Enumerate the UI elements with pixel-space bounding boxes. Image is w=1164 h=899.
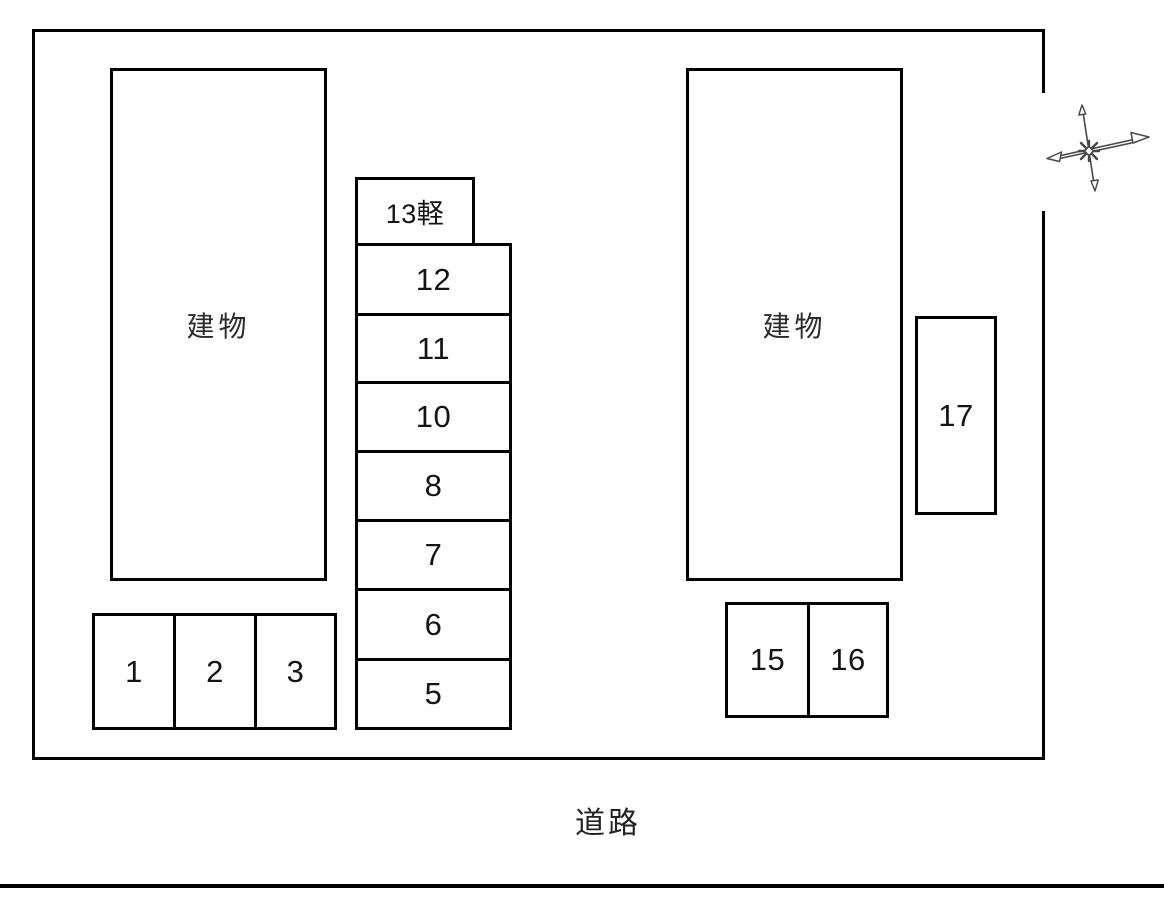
parking-space-10: 10 — [355, 381, 512, 453]
parking-space-17-label: 17 — [938, 398, 973, 434]
parking-space-10-label: 10 — [416, 399, 451, 435]
building-right-label: 建物 — [762, 305, 826, 345]
parking-space-12: 12 — [355, 243, 512, 316]
parking-space-7: 7 — [355, 519, 512, 591]
site-boundary-right-upper — [1042, 29, 1045, 93]
parking-space-8: 8 — [355, 450, 512, 522]
parking-space-17: 17 — [915, 316, 997, 515]
parking-space-15-label: 15 — [750, 642, 785, 678]
parking-space-2-label: 2 — [206, 654, 224, 690]
road-label: 道路 — [575, 798, 641, 842]
parking-space-2: 2 — [173, 613, 257, 730]
compass-rose-icon — [1040, 100, 1156, 196]
building-right: 建物 — [686, 68, 903, 581]
parking-space-13kei-label: 13軽 — [386, 192, 445, 231]
parking-space-13kei: 13軽 — [355, 177, 475, 246]
parking-space-1-label: 1 — [125, 654, 143, 690]
site-boundary-top — [32, 29, 1045, 32]
parking-space-3-label: 3 — [287, 654, 305, 690]
parking-space-16-label: 16 — [830, 642, 865, 678]
building-left-label: 建物 — [186, 305, 250, 345]
parking-layout-diagram: 建物 建物 13軽 12 11 10 8 7 6 5 1 2 3 15 16 — [0, 0, 1164, 899]
road-edge-line — [0, 884, 1164, 888]
parking-space-3: 3 — [254, 613, 337, 730]
parking-space-12-label: 12 — [416, 262, 451, 298]
parking-space-11-label: 11 — [417, 331, 450, 367]
parking-space-11: 11 — [355, 313, 512, 384]
site-boundary-left — [32, 29, 35, 760]
parking-space-5-label: 5 — [425, 676, 443, 712]
site-boundary-right-lower — [1042, 211, 1045, 760]
building-left: 建物 — [110, 68, 327, 581]
site-boundary-bottom — [32, 757, 1045, 760]
parking-space-6: 6 — [355, 588, 512, 661]
parking-space-1: 1 — [92, 613, 176, 730]
parking-space-15: 15 — [725, 602, 810, 718]
parking-space-16: 16 — [807, 602, 889, 718]
parking-space-5: 5 — [355, 658, 512, 730]
parking-space-8-label: 8 — [425, 468, 443, 504]
parking-space-7-label: 7 — [425, 537, 443, 573]
parking-space-6-label: 6 — [425, 607, 443, 643]
